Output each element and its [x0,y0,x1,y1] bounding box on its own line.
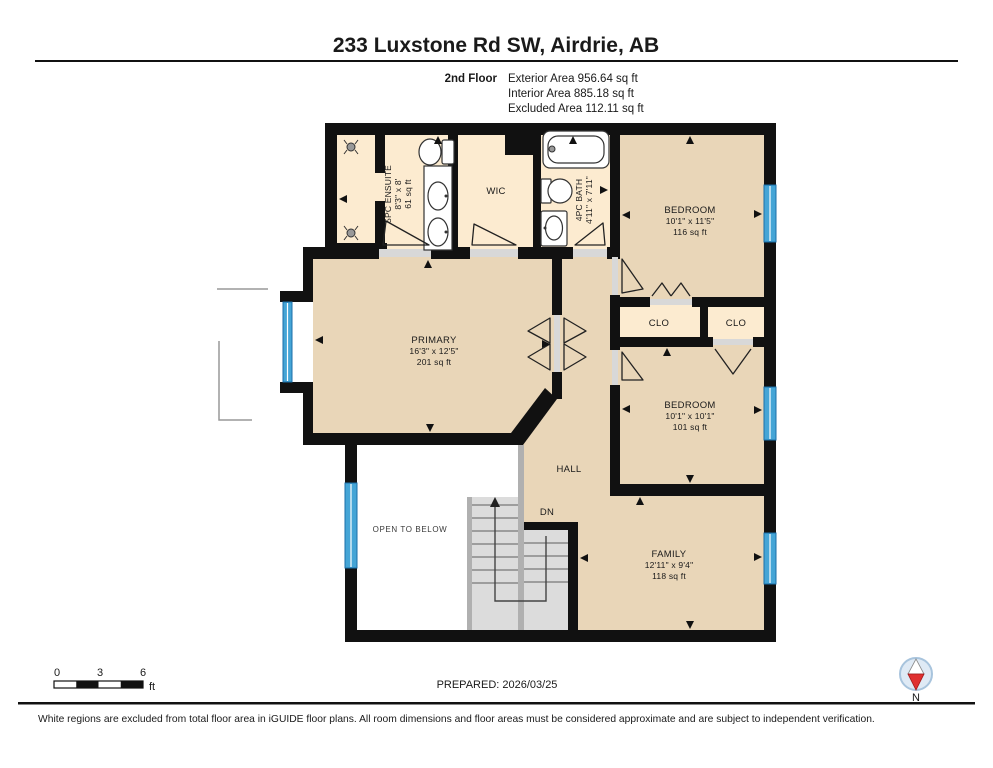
bedroom1-door-opening [612,257,618,295]
stair-stringer-mid [518,445,524,630]
open-to-below-label: OPEN TO BELOW [373,525,448,534]
floor-plan-canvas: 233 Luxstone Rd SW, Airdrie, AB 2nd Floo… [0,0,993,768]
scale-bar-segment [76,681,98,688]
clo1-door-opening [650,299,692,305]
eave-lines [217,289,268,420]
family-dims: 12'11" x 9'4" [645,560,694,570]
clo2-label: CLO [726,318,746,329]
ensuite-dims: 8'3" x 8' [393,178,403,209]
bedroom1-dims: 10'1" x 11'5" [666,216,715,226]
bedroom1-area: 116 sq ft [673,227,707,237]
floor-label: 2nd Floor [445,73,498,85]
ensuite-area: 61 sq ft [403,179,413,209]
primary-area: 201 sq ft [417,357,452,367]
scale-bar: 0 3 6 ft [54,667,155,693]
compass-icon [900,658,932,690]
header: 233 Luxstone Rd SW, Airdrie, AB 2nd Floo… [35,34,958,115]
open-below-white [357,445,467,630]
floor-plan-page: 233 Luxstone Rd SW, Airdrie, AB 2nd Floo… [0,0,993,768]
interior-area: Interior Area 885.18 sq ft [508,88,635,100]
bath-dims: 4'11" x 7'11" [584,176,594,224]
disclaimer-text: White regions are excluded from total fl… [38,714,875,725]
excluded-area: Excluded Area 112.11 sq ft [508,103,645,115]
bath-toilet-icon [541,179,572,203]
stair-stringer-left [467,497,472,630]
family-label: FAMILY [652,549,687,560]
bedroom2-dims: 10'1" x 10'1" [665,411,714,421]
scale-unit-label: ft [149,681,155,693]
primary-label: PRIMARY [411,335,457,346]
prepared-date: PREPARED: 2026/03/25 [437,679,558,691]
stairs-dn-label: DN [540,507,554,518]
page-title: 233 Luxstone Rd SW, Airdrie, AB [333,34,659,57]
bedroom2-door-opening [612,350,618,385]
scale-tick-0: 0 [54,667,60,679]
wic-door-opening [470,249,518,257]
footer-rule [18,702,975,705]
shower-room-fill [333,131,381,247]
primary-door-opening [554,315,560,372]
primary-dims: 16'3" x 12'5" [409,346,458,356]
scale-bar-segment [121,681,143,688]
bath-door-opening [573,249,607,257]
bath-label: 4PC BATH [574,179,584,222]
family-area: 118 sq ft [652,571,686,581]
ensuite-label: 5PC ENSUITE [383,165,393,223]
bath-sink-icon [541,211,567,246]
exterior-area: Exterior Area 956.64 sq ft [508,73,639,85]
bedroom2-area: 101 sq ft [673,422,708,432]
ensuite-vanity-icon [424,166,452,250]
bedroom2-label: BEDROOM [664,400,715,411]
footer: PREPARED: 2026/03/25 N White regions are… [18,658,975,725]
stair-run-up [467,497,518,630]
scale-tick-3: 3 [97,667,103,679]
bathtub-icon [543,131,609,168]
clo2-door-opening [713,339,753,345]
scale-tick-6: 6 [140,667,146,679]
wic-label: WIC [486,186,505,197]
open-below-white-band [467,445,518,497]
header-rule [35,60,958,62]
ensuite-door-opening [379,249,431,257]
compass-north-label: N [912,692,920,704]
hall-label: HALL [557,464,582,475]
clo1-label: CLO [649,318,669,329]
bedroom1-label: BEDROOM [664,205,715,216]
